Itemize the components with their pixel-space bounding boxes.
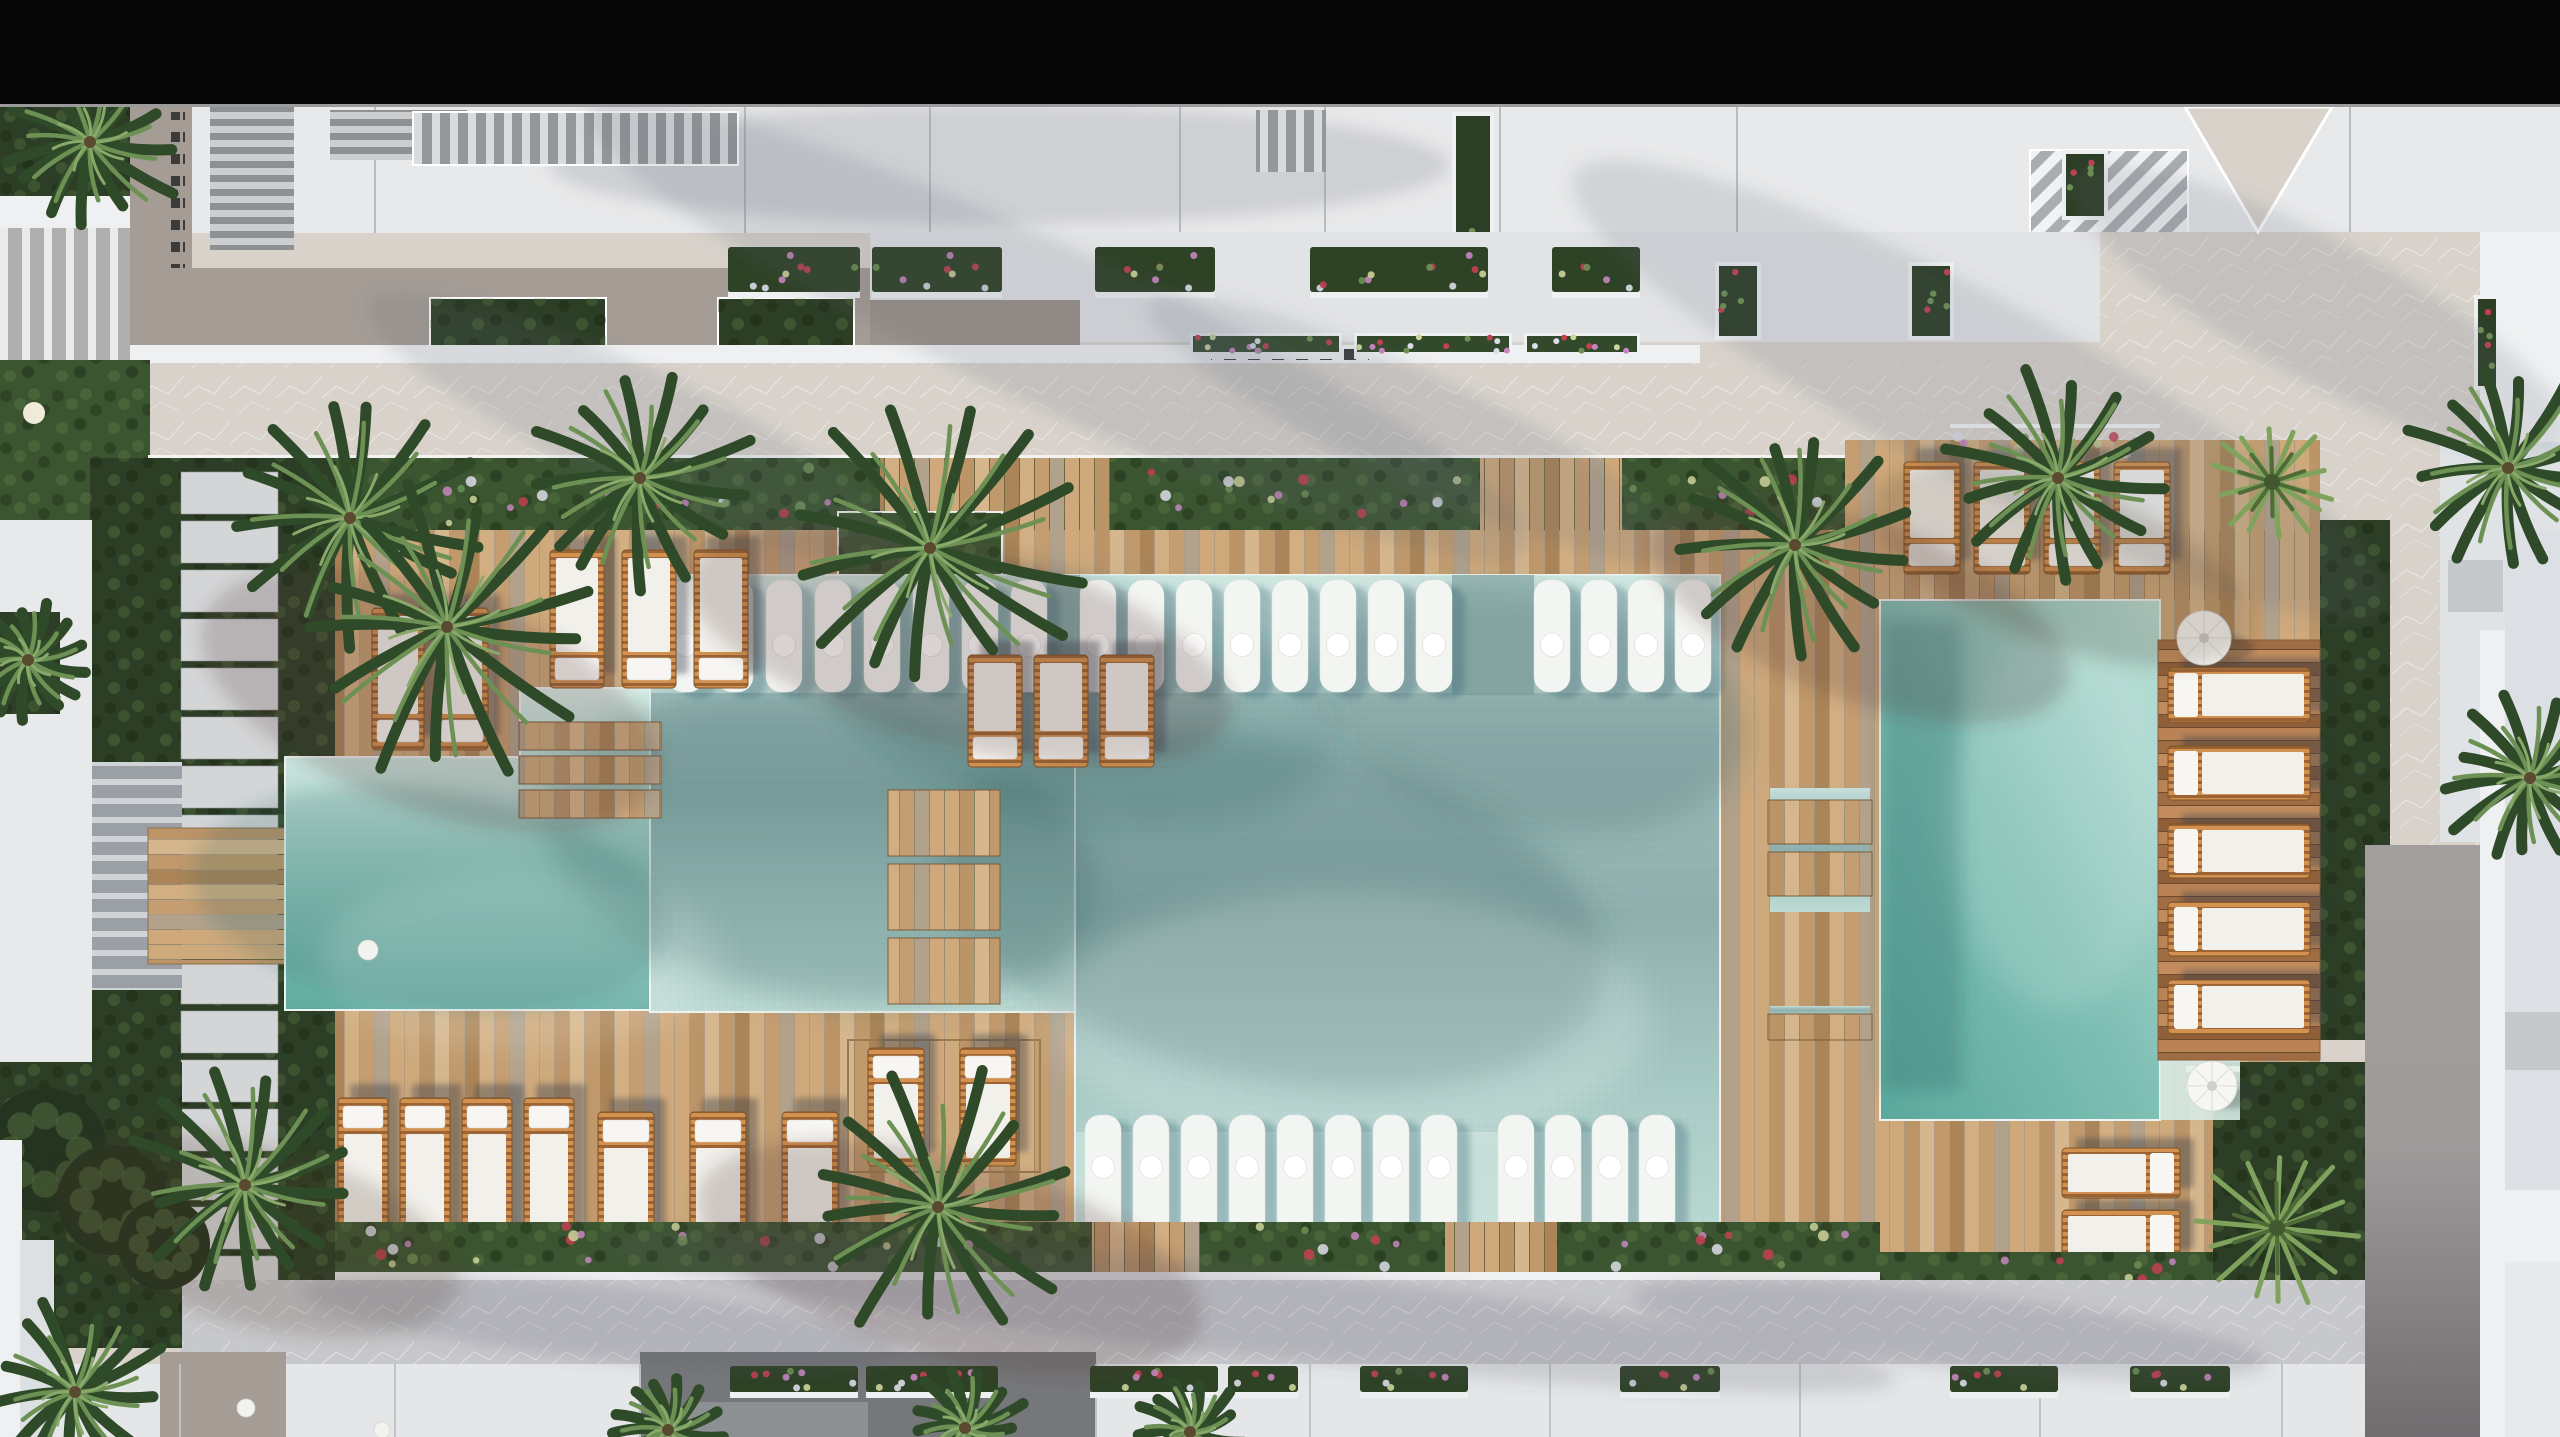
garden-flowers (1160, 490, 1171, 501)
pool-lounger-pillow (1092, 1156, 1115, 1179)
flower (1570, 334, 1576, 340)
strip-flowers (1351, 1232, 1359, 1240)
white-flowers (358, 940, 378, 960)
stepping-slab-column (181, 766, 278, 808)
garden-flowers (446, 520, 452, 526)
pool-step (1768, 800, 1872, 844)
round-bush-leaf (55, 1112, 82, 1139)
flower (1472, 266, 1479, 273)
flower (750, 283, 757, 290)
garden-flowers (1688, 476, 1696, 484)
flower (1368, 271, 1375, 278)
lounger-mattress (2202, 908, 2304, 950)
strip-flowers (1696, 1235, 1706, 1245)
planter-lip (1950, 1392, 2058, 1398)
lounger-mattress (2068, 1216, 2146, 1254)
louver-roof (210, 107, 294, 250)
strip-flowers (1393, 1241, 1400, 1248)
flower (1404, 348, 1410, 354)
strip-flowers (1841, 1231, 1849, 1239)
strip-flowers (473, 1257, 479, 1263)
planter-lip (1310, 292, 1488, 298)
lounger-pillow (2174, 751, 2198, 795)
flower (1443, 343, 1449, 349)
south-roof-taupe (160, 1352, 286, 1437)
water-highlight (1050, 890, 1650, 1150)
lounger-pillow (965, 1056, 1011, 1078)
garden-flowers (457, 485, 465, 493)
flower (803, 1384, 810, 1391)
garden-flowers (470, 496, 477, 503)
building-notch (2448, 560, 2503, 612)
pool-lounger-pillow (1332, 1156, 1355, 1179)
flower (1151, 1369, 1158, 1376)
flower (1623, 348, 1629, 354)
pool-lounger-pillow (1236, 1156, 1259, 1179)
garden-flowers (507, 504, 514, 511)
flower (1487, 335, 1493, 341)
flower (2088, 160, 2094, 166)
stepping-slab-column (181, 962, 278, 1004)
lounger-pillow (699, 658, 743, 680)
lounger-pillow (2174, 673, 2198, 717)
lounger-pillow (2174, 829, 2198, 873)
flower (1614, 344, 1620, 350)
pool-lounger-pillow (1423, 634, 1446, 657)
building-notch (2505, 1012, 2560, 1070)
lounger-pillow (343, 1106, 383, 1128)
flower (1465, 336, 1471, 342)
flower (1952, 1374, 1959, 1381)
flower (1124, 266, 1131, 273)
pool-lounger-pillow (1140, 1156, 1163, 1179)
flower (1234, 1380, 1241, 1387)
flower (876, 1384, 883, 1391)
lounger-pillow (695, 1120, 741, 1142)
strip-flowers (562, 1222, 571, 1231)
flower (1377, 339, 1383, 345)
flower (849, 1380, 856, 1387)
flower (1578, 348, 1584, 354)
strip-flowers (2134, 1261, 2142, 1269)
lounger-mattress (2202, 752, 2304, 794)
strip-flowers (1304, 1249, 1315, 1260)
pool-lounger-pillow (1380, 1156, 1403, 1179)
pool-lounger-pillow (1505, 1156, 1528, 1179)
lounger-mattress (2202, 674, 2304, 716)
garden-flowers (466, 476, 477, 487)
pool-lounger-pillow (1588, 634, 1611, 657)
garden-flowers (519, 497, 528, 506)
pool-step (1768, 1014, 1872, 1040)
strip-flowers (577, 1231, 585, 1239)
pool-lounger-pillow (1231, 634, 1254, 657)
flower (1559, 270, 1566, 277)
aerial-render-image (0, 0, 2560, 1437)
flower (1416, 334, 1422, 340)
flower (779, 276, 786, 283)
strip-flowers (1371, 1235, 1381, 1245)
pool-lounger-pillow (1635, 634, 1658, 657)
strip-flowers (1301, 1227, 1309, 1235)
flower (763, 1370, 770, 1377)
flower (1252, 1370, 1259, 1377)
strip-flowers (1256, 1223, 1264, 1231)
flower (894, 1384, 901, 1391)
strip-flowers (1763, 1249, 1774, 1260)
strip-wood (1445, 1222, 1557, 1274)
flower (783, 1374, 790, 1381)
strip-flowers (1818, 1230, 1829, 1241)
lounger-pillow (2150, 1215, 2174, 1255)
flower (751, 1371, 758, 1378)
lounger-mattress (2202, 830, 2304, 872)
building-roof-right (2505, 1262, 2560, 1437)
lounger-pillow (2174, 985, 2198, 1029)
planter-lip (1552, 292, 1640, 298)
flower (1561, 335, 1567, 341)
strip-flowers (1778, 1261, 1786, 1269)
flower (1974, 1371, 1981, 1378)
flower (1289, 1384, 1296, 1391)
flower (1583, 264, 1590, 271)
lounger-mattress (2202, 986, 2304, 1028)
strip-flowers (2001, 1256, 2009, 1264)
planter-lip (1360, 1392, 1468, 1398)
lounger-pillow (787, 1120, 833, 1142)
strip-flowers (1725, 1232, 1732, 1239)
lounger-mattress (2068, 1154, 2146, 1192)
flower (1494, 338, 1500, 344)
strip-flowers (1611, 1261, 1621, 1271)
strip-flowers (1694, 1227, 1702, 1235)
pool-lounger-pillow (1188, 1156, 1211, 1179)
flower (1407, 343, 1413, 349)
flower (1185, 284, 1192, 291)
hedge-planter (1228, 1366, 1298, 1392)
stepping-slab-column (181, 1011, 278, 1053)
flower (1387, 1384, 1394, 1391)
pool-lounger-pillow (1284, 1156, 1307, 1179)
building-roof-right (2505, 530, 2560, 1190)
flower (1626, 284, 1633, 291)
pool-lounger-pillow (1375, 634, 1398, 657)
strip-flowers (2152, 1263, 2163, 1274)
flower (2485, 309, 2491, 315)
flower (1156, 264, 1163, 271)
water-highlight (320, 870, 720, 1050)
flower (1152, 276, 1159, 283)
strip-flowers (2056, 1257, 2063, 1264)
flower (1358, 277, 1365, 284)
strip-flowers (1712, 1244, 1723, 1255)
flower (1960, 1380, 1967, 1387)
pool-step-bridge (888, 938, 1000, 1004)
pool-lounger-pillow (1428, 1156, 1451, 1179)
white-flowers (237, 1399, 255, 1417)
flower (762, 284, 769, 291)
strip-flowers (585, 1257, 592, 1264)
flower (1426, 264, 1433, 271)
lounger-pillow (467, 1106, 507, 1128)
lounger-pillow (2150, 1153, 2174, 1193)
flower (1442, 1374, 1449, 1381)
balcony-railing (1256, 110, 1326, 172)
lounger-pillow (603, 1120, 649, 1142)
white-flowers (374, 1422, 390, 1437)
pool-lounger-pillow (1599, 1156, 1622, 1179)
path-right (2365, 845, 2480, 1437)
planter-lip (1228, 1392, 1298, 1398)
flower (1449, 283, 1456, 290)
pool-lounger-pillow (1646, 1156, 1669, 1179)
round-bush-leaf (7, 1112, 34, 1139)
hedge-planter (1310, 247, 1488, 292)
flower (1466, 252, 1473, 259)
pool-step-bridge (888, 790, 1000, 856)
strip-flowers (1621, 1241, 1628, 1248)
flower (910, 1374, 917, 1381)
garden-flowers (443, 486, 453, 496)
pool-step-bridge (888, 864, 1000, 930)
pool-step (1768, 852, 1872, 896)
planter-lip (2130, 1392, 2230, 1398)
flower (1268, 1374, 1275, 1381)
flower (1586, 343, 1592, 349)
flower (1186, 1384, 1193, 1391)
parasol-pole (2207, 1081, 2217, 1091)
planter-lip (1620, 1392, 1720, 1398)
strip-flowers (1810, 1223, 1818, 1231)
lounger-pillow (2174, 907, 2198, 951)
building-roof-right (2500, 1190, 2560, 1262)
flower (1122, 1384, 1129, 1391)
pool-lounger-pillow (1541, 634, 1564, 657)
flower (1133, 1374, 1140, 1381)
flower (1603, 276, 1610, 283)
flower (2020, 1384, 2027, 1391)
flower (1532, 343, 1538, 349)
flower (1320, 281, 1327, 288)
pool-lounger-pillow (1327, 634, 1350, 657)
strip-flowers (2169, 1258, 2176, 1265)
resort-aerial-rendering (0, 0, 2560, 1437)
strip-flowers (671, 1223, 679, 1231)
lounger-pillow (529, 1106, 569, 1128)
flower (793, 1384, 800, 1391)
flower (1190, 252, 1197, 259)
garden-flowers (1175, 504, 1182, 511)
flower (1592, 344, 1598, 350)
letterbox-edge (0, 104, 2560, 107)
flower (1494, 348, 1500, 354)
pool-lounger-pillow (1552, 1156, 1575, 1179)
round-bush-leaf (31, 1102, 58, 1129)
pool-lounger-pillow (1279, 634, 1302, 657)
pool-lounger-pillow (1682, 634, 1705, 657)
flower (1504, 348, 1510, 354)
garden-flowers (1148, 469, 1155, 476)
flower (1479, 270, 1486, 277)
lounger-pillow (405, 1106, 445, 1128)
flower (2160, 1380, 2167, 1387)
planter-lip (730, 1392, 858, 1398)
strip-flowers (1318, 1244, 1329, 1255)
garden-lamp (23, 402, 45, 424)
stairs-top-left (0, 228, 136, 362)
flower (1553, 338, 1559, 344)
strip-flowers (1379, 1261, 1389, 1271)
flower (2180, 1384, 2187, 1391)
garden-flowers (537, 490, 548, 501)
garden-right-texture (2320, 850, 2365, 1040)
lounger-pillow (627, 658, 671, 680)
letterbox-top (0, 0, 2560, 104)
flower (1371, 1370, 1378, 1377)
